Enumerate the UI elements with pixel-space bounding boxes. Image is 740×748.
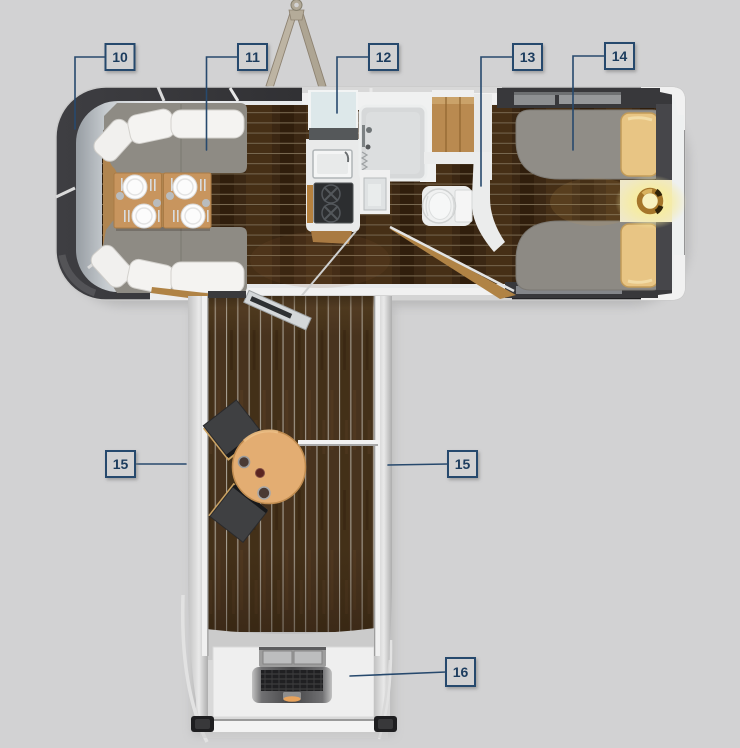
svg-text:11: 11 bbox=[245, 49, 260, 65]
svg-text:15: 15 bbox=[455, 456, 471, 472]
svg-text:16: 16 bbox=[453, 664, 469, 680]
svg-text:15: 15 bbox=[113, 456, 129, 472]
svg-text:13: 13 bbox=[520, 49, 536, 65]
svg-text:14: 14 bbox=[612, 48, 628, 64]
svg-text:12: 12 bbox=[376, 49, 392, 65]
svg-text:10: 10 bbox=[112, 49, 128, 65]
